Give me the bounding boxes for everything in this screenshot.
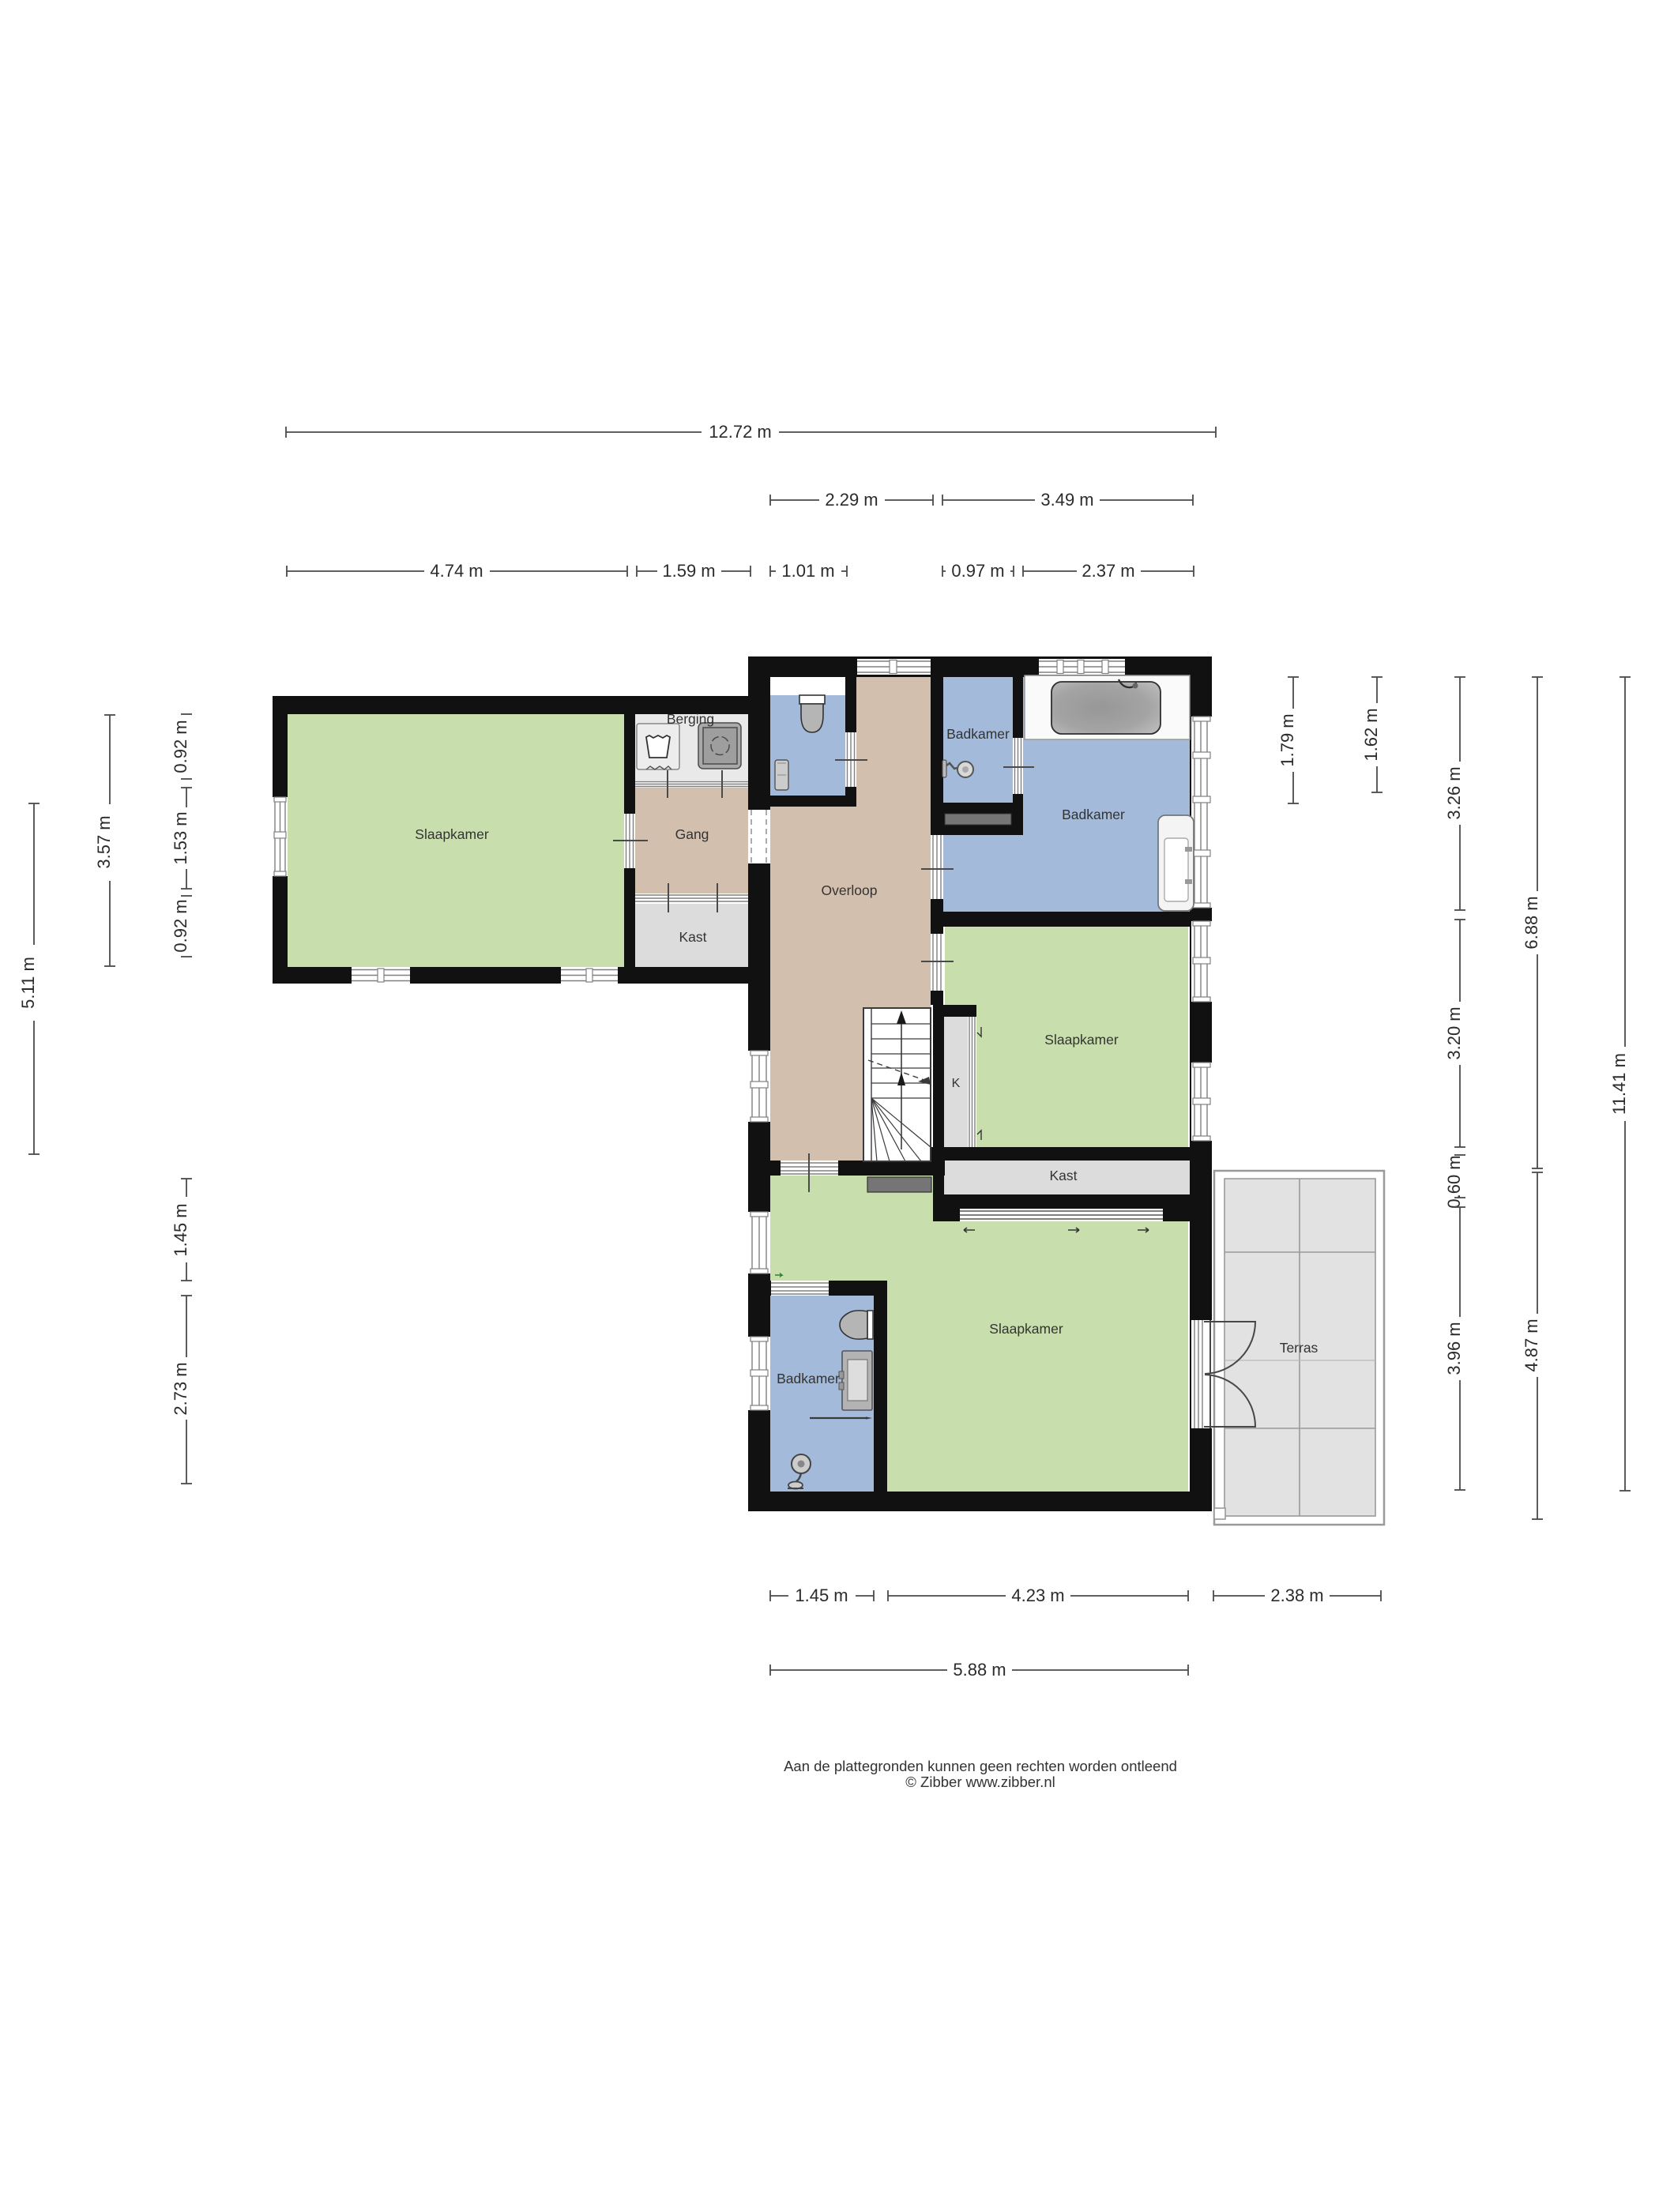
svg-text:5.88 m: 5.88 m [953, 1660, 1006, 1680]
svg-text:1.79 m: 1.79 m [1277, 713, 1297, 766]
svg-text:2.38 m: 2.38 m [1270, 1586, 1323, 1605]
svg-text:Aan de plattegronden kunnen ge: Aan de plattegronden kunnen geen rechten… [784, 1758, 1177, 1774]
svg-text:3.49 m: 3.49 m [1040, 490, 1093, 510]
svg-text:1.01 m: 1.01 m [781, 561, 834, 581]
svg-text:Kast: Kast [679, 929, 706, 945]
svg-text:Badkamer: Badkamer [777, 1371, 840, 1386]
svg-text:2.73 m: 2.73 m [171, 1362, 190, 1415]
svg-text:12.72 m: 12.72 m [709, 422, 772, 442]
svg-text:3.20 m: 3.20 m [1444, 1006, 1464, 1059]
svg-text:5.11 m: 5.11 m [18, 957, 38, 1009]
svg-text:1.45 m: 1.45 m [171, 1203, 190, 1256]
svg-text:Terras: Terras [1280, 1340, 1319, 1356]
svg-text:K: K [952, 1077, 961, 1090]
svg-text:1.45 m: 1.45 m [795, 1586, 848, 1605]
svg-text:0.60 m: 0.60 m [1444, 1155, 1464, 1208]
svg-text:11.41 m: 11.41 m [1609, 1053, 1629, 1115]
svg-text:1.59 m: 1.59 m [662, 561, 715, 581]
svg-text:6.88 m: 6.88 m [1522, 896, 1541, 949]
svg-text:3.57 m: 3.57 m [94, 815, 114, 868]
svg-text:Slaapkamer: Slaapkamer [415, 826, 489, 842]
svg-text:Berging: Berging [667, 711, 714, 727]
svg-text:3.96 m: 3.96 m [1444, 1322, 1464, 1375]
svg-text:Slaapkamer: Slaapkamer [1044, 1032, 1119, 1048]
svg-text:4.74 m: 4.74 m [430, 561, 483, 581]
svg-text:Badkamer: Badkamer [946, 726, 1010, 742]
svg-text:Gang: Gang [675, 826, 709, 842]
svg-text:0.92 m: 0.92 m [171, 899, 190, 952]
svg-text:Kast: Kast [1049, 1168, 1077, 1183]
svg-text:Overloop: Overloop [821, 882, 877, 898]
svg-text:2.37 m: 2.37 m [1082, 561, 1134, 581]
svg-text:1.53 m: 1.53 m [171, 811, 190, 864]
svg-text:0.92 m: 0.92 m [171, 720, 190, 773]
svg-text:0.97 m: 0.97 m [951, 561, 1004, 581]
svg-text:3.26 m: 3.26 m [1444, 766, 1464, 819]
svg-text:© Zibber www.zibber.nl: © Zibber www.zibber.nl [905, 1774, 1055, 1790]
svg-text:Badkamer: Badkamer [1062, 807, 1125, 822]
svg-text:4.23 m: 4.23 m [1011, 1586, 1064, 1605]
svg-text:Slaapkamer: Slaapkamer [989, 1321, 1063, 1337]
svg-text:2.29 m: 2.29 m [825, 490, 878, 510]
svg-text:4.87 m: 4.87 m [1522, 1319, 1541, 1371]
svg-text:1.62 m: 1.62 m [1361, 708, 1381, 761]
